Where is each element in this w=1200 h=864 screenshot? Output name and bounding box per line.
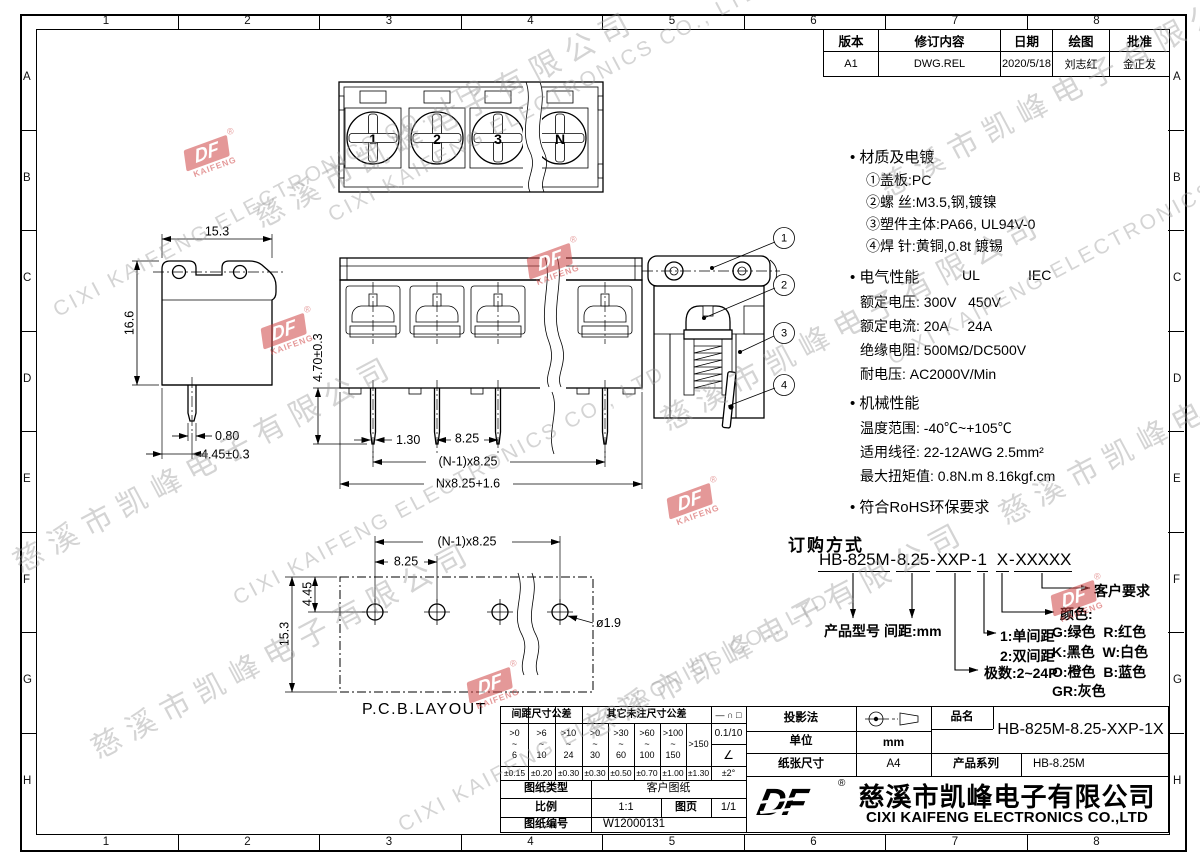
stamp-label: KAIFENG: [189, 153, 241, 180]
watermark-text: 慈溪市凯峰电子有限公司: [245, 0, 644, 236]
watermark-text: 慈溪市凯峰电子有限公司: [870, 0, 1200, 206]
watermark-text: CIXI KAIFENG ELECTRONICS CO., LTD: [49, 73, 489, 322]
stamp-label: KAIFENG: [532, 261, 584, 288]
watermark-text: 慈溪市凯峰电子有限公司: [990, 293, 1200, 533]
watermark-text: 慈溪市凯峰电子有限公司: [575, 507, 974, 747]
watermark-text: 慈溪市凯峰电子有限公司: [652, 199, 1051, 439]
watermark-text: 慈溪市凯峰电子有限公司: [82, 527, 481, 767]
stamp-label: KAIFENG: [266, 331, 318, 358]
watermark-text: CIXI KAIFENG ELECTRONICS CO., LTD: [229, 361, 669, 610]
watermark-layer: CIXI KAIFENG ELECTRONICS CO., LTDCIXI KA…: [0, 0, 1200, 864]
stamp-logo: DF: [667, 483, 713, 520]
stamp-logo: DF: [467, 667, 513, 704]
stamp-registered-mark: ®: [508, 657, 518, 669]
kaifeng-stamp: DFKAIFENG®: [465, 663, 532, 713]
stamp-registered-mark: ®: [302, 303, 312, 315]
kaifeng-stamp: DFKAIFENG®: [182, 131, 249, 181]
stamp-logo: DF: [1051, 580, 1097, 617]
stamp-label: KAIFENG: [672, 501, 724, 528]
stamp-registered-mark: ®: [1092, 570, 1102, 582]
watermark-text: CIXI KAIFENG ELECTRONICS CO., LTD: [884, 121, 1200, 370]
kaifeng-stamp: DFKAIFENG®: [1049, 576, 1116, 626]
watermark-text: 慈溪市凯峰电子有限公司: [4, 341, 403, 581]
stamp-registered-mark: ®: [568, 233, 578, 245]
stamp-label: KAIFENG: [472, 685, 524, 712]
watermark-text: CIXI KAIFENG ELECTRONICS CO., LTD: [394, 588, 834, 837]
stamp-registered-mark: ®: [225, 125, 235, 137]
stamp-logo: DF: [527, 243, 573, 280]
kaifeng-stamp: DFKAIFENG®: [525, 239, 592, 289]
stamp-logo: DF: [184, 135, 230, 172]
kaifeng-stamp: DFKAIFENG®: [665, 479, 732, 529]
stamp-registered-mark: ®: [708, 473, 718, 485]
drawing-sheet: 1122334455667788AABBCCDDEEFFGGHH 版本 修订内容…: [0, 0, 1200, 864]
stamp-label: KAIFENG: [1056, 598, 1108, 625]
watermark-text: CIXI KAIFENG ELECTRONICS CO., LTD: [324, 0, 764, 228]
kaifeng-stamp: DFKAIFENG®: [259, 309, 326, 359]
stamp-logo: DF: [261, 313, 307, 350]
